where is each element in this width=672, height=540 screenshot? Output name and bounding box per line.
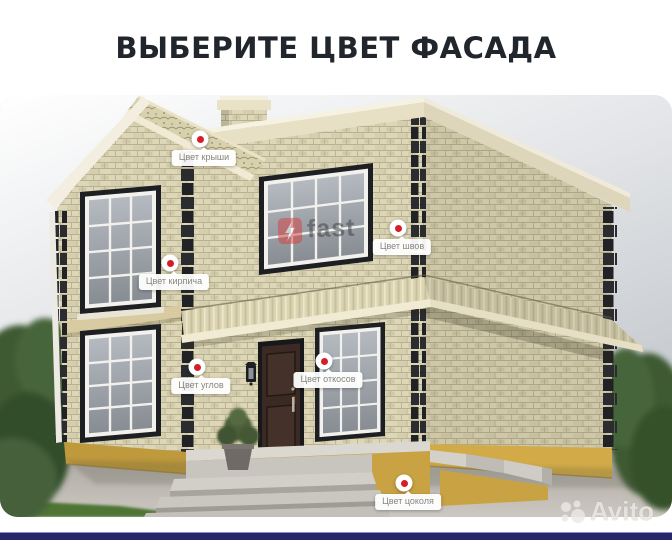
fast-watermark-text: fast bbox=[306, 214, 355, 245]
pin-icon bbox=[192, 131, 209, 148]
house-scene bbox=[0, 95, 672, 517]
avito-logo-icon bbox=[556, 497, 588, 527]
house bbox=[46, 96, 644, 517]
avito-watermark-text: Avito bbox=[590, 496, 654, 527]
avito-watermark: Avito bbox=[556, 496, 654, 527]
pin-icon bbox=[396, 475, 413, 492]
hotspot-label: Цвет цоколя bbox=[375, 494, 441, 510]
listing-page: ВЫБЕРИТЕ ЦВЕТ ФАСАДА bbox=[0, 0, 672, 540]
image-header: ВЫБЕРИТЕ ЦВЕТ ФАСАДА bbox=[0, 0, 672, 95]
fast-watermark: fast bbox=[278, 214, 356, 246]
hotspot-label: Цвет откосов bbox=[293, 372, 362, 388]
fast-logo-icon bbox=[278, 217, 303, 244]
pin-icon bbox=[162, 255, 179, 272]
hotspot-label: Цвет крыши bbox=[172, 150, 236, 166]
hotspot-label: Цвет углов bbox=[171, 378, 230, 394]
window-left-upper bbox=[77, 185, 164, 320]
pin-icon bbox=[390, 220, 407, 237]
pin-icon bbox=[189, 359, 206, 376]
hotspot-label: Цвет швов bbox=[373, 239, 431, 255]
house-render-photo[interactable]: fast Цвет крыши Цвет кирпича Цвет швов Ц… bbox=[0, 95, 672, 517]
bottom-bar bbox=[0, 532, 672, 540]
hotspot-label: Цвет кирпича bbox=[139, 274, 209, 290]
pin-icon bbox=[316, 353, 333, 370]
window-left-lower bbox=[80, 324, 161, 443]
page-title: ВЫБЕРИТЕ ЦВЕТ ФАСАДА bbox=[115, 31, 556, 65]
